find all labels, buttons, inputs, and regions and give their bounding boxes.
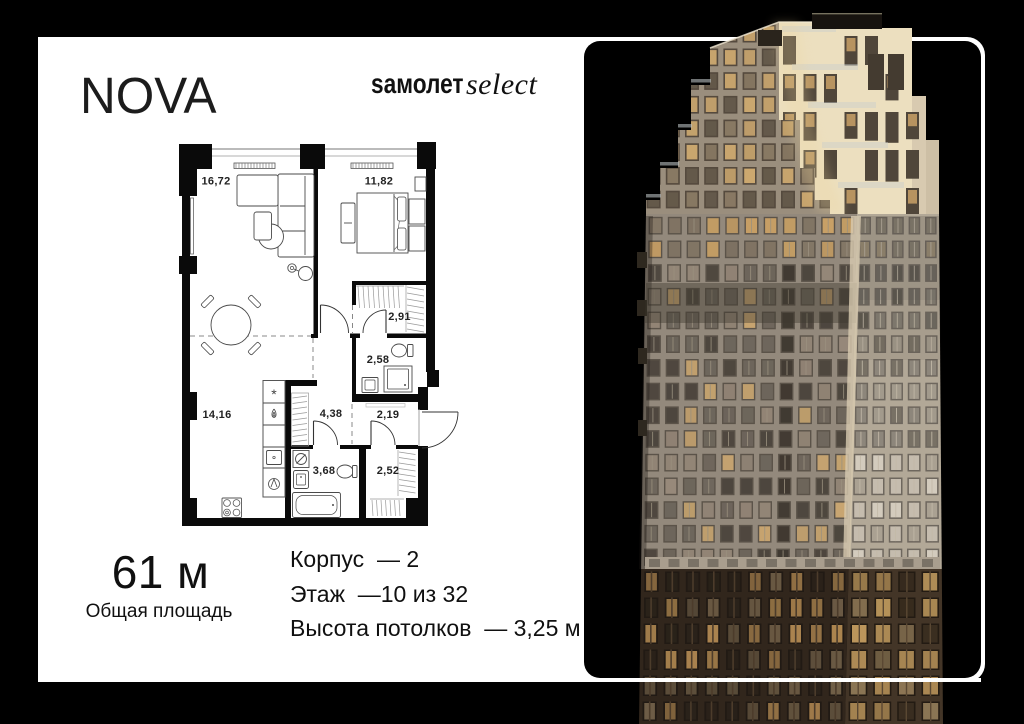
svg-text:2,19: 2,19 — [377, 409, 400, 421]
svg-text:14,16: 14,16 — [202, 409, 231, 421]
svg-text:*: * — [271, 386, 277, 402]
svg-text:2,52: 2,52 — [377, 465, 400, 477]
svg-text:4,38: 4,38 — [320, 408, 343, 420]
svg-text:11,82: 11,82 — [365, 176, 393, 188]
svg-text:16,72: 16,72 — [201, 176, 230, 188]
svg-text:3,68: 3,68 — [313, 465, 336, 477]
svg-text:2,58: 2,58 — [367, 354, 390, 366]
svg-text:2,91: 2,91 — [388, 311, 411, 323]
